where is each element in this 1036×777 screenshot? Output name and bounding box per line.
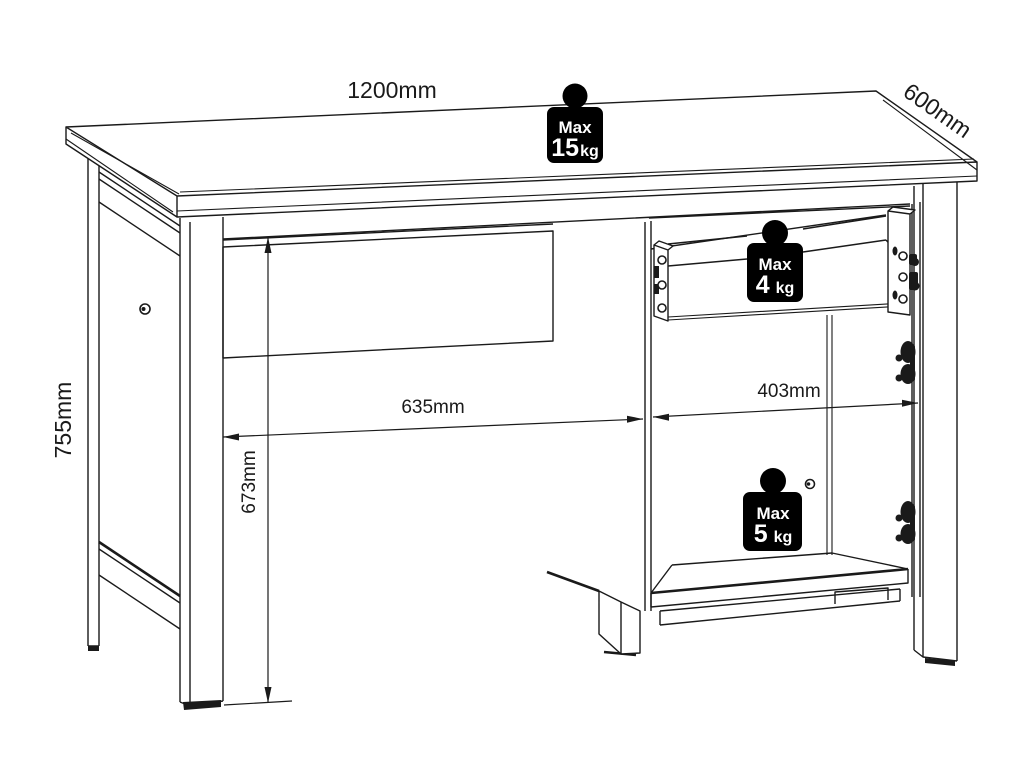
pedestal-cabinet xyxy=(547,202,920,655)
max-load-badge-cabinet: Max 5kg xyxy=(743,468,802,551)
floor-tick xyxy=(224,701,292,705)
left-stretcher-top-edge xyxy=(99,542,180,596)
desk-technical-drawing: 673mm 635mm 403mm 1200mm 600mm 755mm Max… xyxy=(0,0,1036,777)
left-feet xyxy=(88,646,221,710)
drawer-screw-icon xyxy=(658,304,666,312)
dim-label-673: 673mm xyxy=(239,450,260,513)
weight-icon-head xyxy=(563,84,588,109)
drawer-slide-hardware-right xyxy=(909,254,920,291)
cam-screw-dot xyxy=(142,307,146,311)
hinge-bottom-icon xyxy=(896,501,916,544)
desk-dimension-diagram-page: 673mm 635mm 403mm 1200mm 600mm 755mm Max… xyxy=(0,0,1036,777)
drawer-screw-icon xyxy=(658,281,666,289)
back-panel xyxy=(223,224,553,358)
back-panel-board xyxy=(223,231,553,358)
left-leg-frame xyxy=(88,158,223,710)
drawer-slide-rail xyxy=(668,303,903,320)
center-divider-panel xyxy=(645,221,651,611)
max-load-badge-desktop: Max 15kg xyxy=(547,84,603,164)
drawer-screw-icon xyxy=(899,252,907,260)
weight-icon-head xyxy=(762,220,788,246)
dimension-cabinet-403: 403mm xyxy=(653,381,918,421)
drawer-screw-icon xyxy=(899,273,907,281)
cabinet-back-corner xyxy=(827,315,832,555)
desktop-slab xyxy=(66,91,977,217)
drawer-screw-dark xyxy=(893,247,898,256)
drawer-screw-icon xyxy=(658,256,666,264)
back-left-leg xyxy=(88,158,99,646)
cabinet-cam-screw-dot xyxy=(807,482,811,486)
drawer-screw-icon xyxy=(899,295,907,303)
front-left-leg xyxy=(180,217,223,706)
dim-label-635: 635mm xyxy=(401,397,464,418)
desktop xyxy=(66,91,977,217)
drawer-screw-dark xyxy=(893,291,898,300)
divider-foot xyxy=(599,591,640,654)
dimension-kneehole-635: 635mm xyxy=(223,397,643,441)
weight-icon-head xyxy=(760,468,786,494)
max-load-badge-drawer: Max 4kg xyxy=(747,220,803,302)
dim-label-403: 403mm xyxy=(757,381,820,402)
dim-label-755: 755mm xyxy=(50,382,76,459)
dim-label-1200: 1200mm xyxy=(347,77,436,103)
hinge-top-icon xyxy=(896,341,916,384)
